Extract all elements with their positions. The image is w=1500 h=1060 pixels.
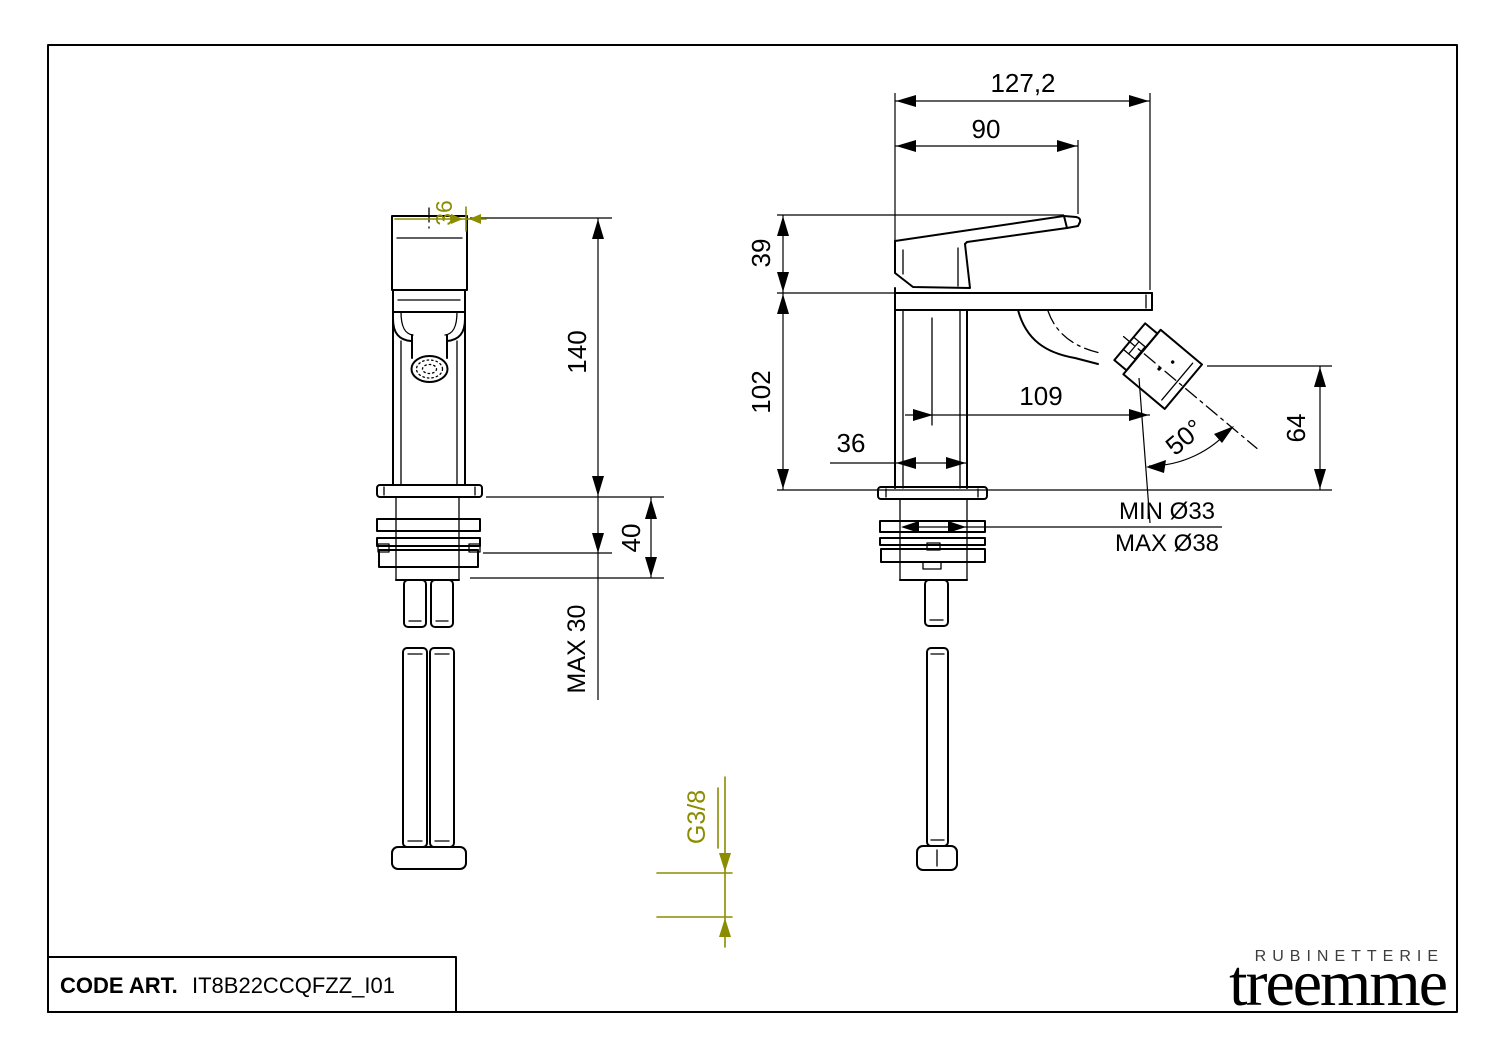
dim-total-height: 140 bbox=[562, 330, 592, 373]
dim-spray-height: 64 bbox=[1281, 414, 1311, 443]
hose-end-block bbox=[392, 847, 466, 869]
dim-spout-reach: 109 bbox=[1019, 381, 1062, 411]
dim-hole-max: MAX Ø38 bbox=[1115, 530, 1219, 557]
mounting-flange bbox=[377, 485, 482, 497]
dim-body-depth: 36 bbox=[837, 428, 866, 458]
dim-max-panel-thickness: MAX 30 bbox=[563, 605, 591, 694]
handle-base bbox=[895, 241, 970, 288]
dim-overall-depth: 127,2 bbox=[990, 68, 1055, 98]
handle-tip bbox=[1064, 216, 1080, 228]
dim-spray-angle: 50° bbox=[1160, 413, 1209, 461]
dim-handle-reach: 90 bbox=[972, 114, 1001, 144]
side-view-dimensions: 127,2 90 39 102 109 36 50° bbox=[746, 68, 1332, 557]
thread-size-label: G3/8 bbox=[683, 790, 711, 844]
front-view-dimensions: 140 40 MAX 30 bbox=[470, 218, 664, 700]
thread-annotation: G3/8 bbox=[657, 777, 732, 947]
clamp-nut bbox=[379, 550, 478, 567]
logo-treemme: treemme bbox=[1229, 947, 1446, 1020]
dim-body-height: 102 bbox=[746, 370, 776, 413]
code-art-value: IT8B22CCQFZZ_I01 bbox=[192, 973, 395, 998]
dim-mount-stack: 40 bbox=[616, 524, 646, 553]
dim-handle-height: 39 bbox=[746, 239, 776, 268]
rubber-washer bbox=[377, 519, 480, 531]
faucet-front-view bbox=[377, 208, 482, 869]
dim-front-top-width: 36 bbox=[431, 200, 457, 226]
technical-drawing-canvas: 140 40 MAX 30 36 G3/8 bbox=[0, 0, 1500, 1060]
title-block: CODE ART. IT8B22CCQFZZ_I01 bbox=[48, 957, 456, 1012]
dim-hole-min: MIN Ø33 bbox=[1119, 498, 1215, 525]
sheet-border bbox=[48, 45, 1457, 1012]
brand-logo: RUBINETTERIE treemme bbox=[1229, 947, 1446, 1020]
code-art-label: CODE ART. bbox=[60, 973, 178, 998]
